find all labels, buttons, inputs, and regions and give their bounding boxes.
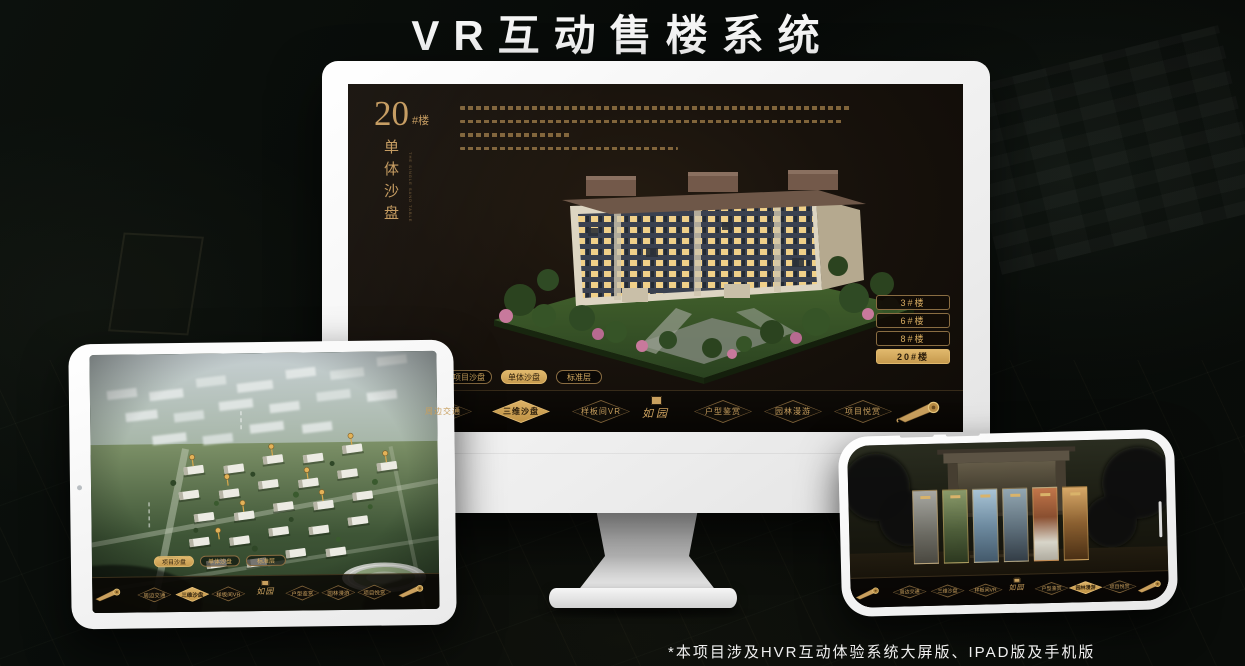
building-select-group: 3#楼 6#楼 8#楼 20#楼 bbox=[876, 295, 950, 364]
nav-item-floorplan-gallery[interactable]: 户型鉴赏 bbox=[1034, 582, 1068, 596]
camera-icon bbox=[77, 485, 82, 490]
ipad-screen: 项目沙盘 单体沙盘 标准层 周边交通 三维沙盘 样板间VR 如园 户型鉴赏 园林… bbox=[89, 351, 439, 613]
nav-item-surrounding-traffic[interactable]: 周边交通 bbox=[893, 585, 927, 599]
nav-item-floorplan-gallery[interactable]: 户型鉴赏 bbox=[285, 585, 319, 600]
building-button-3[interactable]: 3#楼 bbox=[876, 295, 950, 310]
scroll-icon[interactable] bbox=[1136, 579, 1164, 594]
building-button-20[interactable]: 20#楼 bbox=[876, 349, 950, 364]
footnote: *本项目涉及HVR互动体验系统大屏版、IPAD版及手机版 bbox=[668, 641, 1095, 662]
nav-item-surrounding-traffic[interactable]: 周边交通 bbox=[137, 587, 171, 602]
page-title: VR互动售楼系统 bbox=[0, 2, 1245, 63]
nav-item-garden-roam[interactable]: 园林漫游 bbox=[1068, 581, 1102, 595]
tab-project-sandbox[interactable]: 项目沙盘 bbox=[154, 556, 194, 567]
building-number: 20 bbox=[374, 96, 409, 131]
ipad-sandbox-tabs: 项目沙盘 单体沙盘 标准层 bbox=[154, 555, 286, 568]
scroll-icon[interactable] bbox=[94, 587, 124, 603]
nav-item-3d-sandbox[interactable]: 三维沙盘 bbox=[175, 587, 209, 602]
ruyuan-logo: 如园 bbox=[247, 580, 283, 597]
building-button-6[interactable]: 6#楼 bbox=[876, 313, 950, 328]
section-name-english: THE SINGLE SAND TABLE bbox=[408, 152, 413, 222]
nav-item-project-showcase[interactable]: 项目悦赏 bbox=[834, 400, 892, 423]
tab-single-building-sandbox[interactable]: 单体沙盘 bbox=[200, 555, 240, 566]
nav-item-showroom-vr[interactable]: 样板间VR bbox=[572, 400, 630, 423]
nav-item-floorplan-gallery[interactable]: 户型鉴赏 bbox=[694, 400, 752, 423]
seal-icon bbox=[651, 396, 662, 405]
volume-button bbox=[900, 433, 934, 438]
tab-single-building-sandbox[interactable]: 单体沙盘 bbox=[501, 370, 547, 384]
pano-panel-4[interactable] bbox=[1002, 488, 1029, 563]
nav-item-showroom-vr[interactable]: 样板间VR bbox=[968, 583, 1002, 597]
ipad-nav-bar: 周边交通 三维沙盘 样板间VR 如园 户型鉴赏 园林漫游 项目悦赏 bbox=[92, 573, 439, 613]
building-button-8[interactable]: 8#楼 bbox=[876, 331, 950, 346]
tab-standard-floor[interactable]: 标准层 bbox=[556, 370, 602, 384]
phone-screen: 周边交通 三维沙盘 样板间VR 如园 户型鉴赏 园林漫游 项目悦赏 bbox=[847, 438, 1169, 608]
scroll-icon[interactable] bbox=[397, 583, 427, 599]
nav-item-garden-roam[interactable]: 园林漫游 bbox=[764, 400, 822, 423]
nav-item-garden-roam[interactable]: 园林漫游 bbox=[321, 585, 355, 600]
building-number-suffix: #楼 bbox=[412, 112, 429, 128]
volume-button bbox=[946, 432, 980, 437]
section-name-vertical: 单体沙盘 bbox=[380, 139, 401, 227]
pano-panel-2[interactable] bbox=[942, 489, 969, 564]
pano-panel-6[interactable] bbox=[1062, 486, 1089, 561]
building-heading: 20 #楼 单体沙盘 THE SINGLE SAND TABLE bbox=[374, 96, 429, 227]
nav-item-showroom-vr[interactable]: 样板间VR bbox=[211, 586, 245, 601]
nav-item-3d-sandbox[interactable]: 三维沙盘 bbox=[492, 400, 550, 423]
poster: VR互动售楼系统 20 #楼 单体沙盘 THE SINGLE SAND TABL… bbox=[0, 0, 1245, 666]
sandbox-tabs: 项目沙盘 单体沙盘 标准层 bbox=[446, 370, 602, 384]
phone-nav-bar: 周边交通 三维沙盘 样板间VR 如园 户型鉴赏 园林漫游 项目悦赏 bbox=[850, 570, 1169, 608]
pano-panel-1[interactable] bbox=[912, 490, 939, 565]
scroll-icon[interactable] bbox=[855, 586, 883, 601]
nav-item-project-showcase[interactable]: 项目悦赏 bbox=[1102, 580, 1136, 594]
monitor-stand-base bbox=[549, 588, 737, 608]
background-sign-frame bbox=[108, 233, 204, 336]
scroll-icon[interactable] bbox=[896, 400, 946, 424]
pano-panel-3[interactable] bbox=[972, 488, 999, 563]
ruyuan-logo: 如园 bbox=[1000, 577, 1032, 593]
nav-item-3d-sandbox[interactable]: 三维沙盘 bbox=[930, 584, 964, 598]
ipad-device: 项目沙盘 单体沙盘 标准层 周边交通 三维沙盘 样板间VR 如园 户型鉴赏 园林… bbox=[68, 340, 456, 630]
pano-panel-5[interactable] bbox=[1032, 487, 1059, 562]
building-3d-model[interactable] bbox=[486, 148, 922, 386]
nav-item-project-showcase[interactable]: 项目悦赏 bbox=[357, 584, 391, 599]
tab-standard-floor[interactable]: 标准层 bbox=[246, 555, 286, 566]
phone-device: 周边交通 三维沙盘 样板间VR 如园 户型鉴赏 园林漫游 项目悦赏 bbox=[838, 429, 1178, 617]
ruyuan-logo: 如园 bbox=[628, 396, 684, 421]
